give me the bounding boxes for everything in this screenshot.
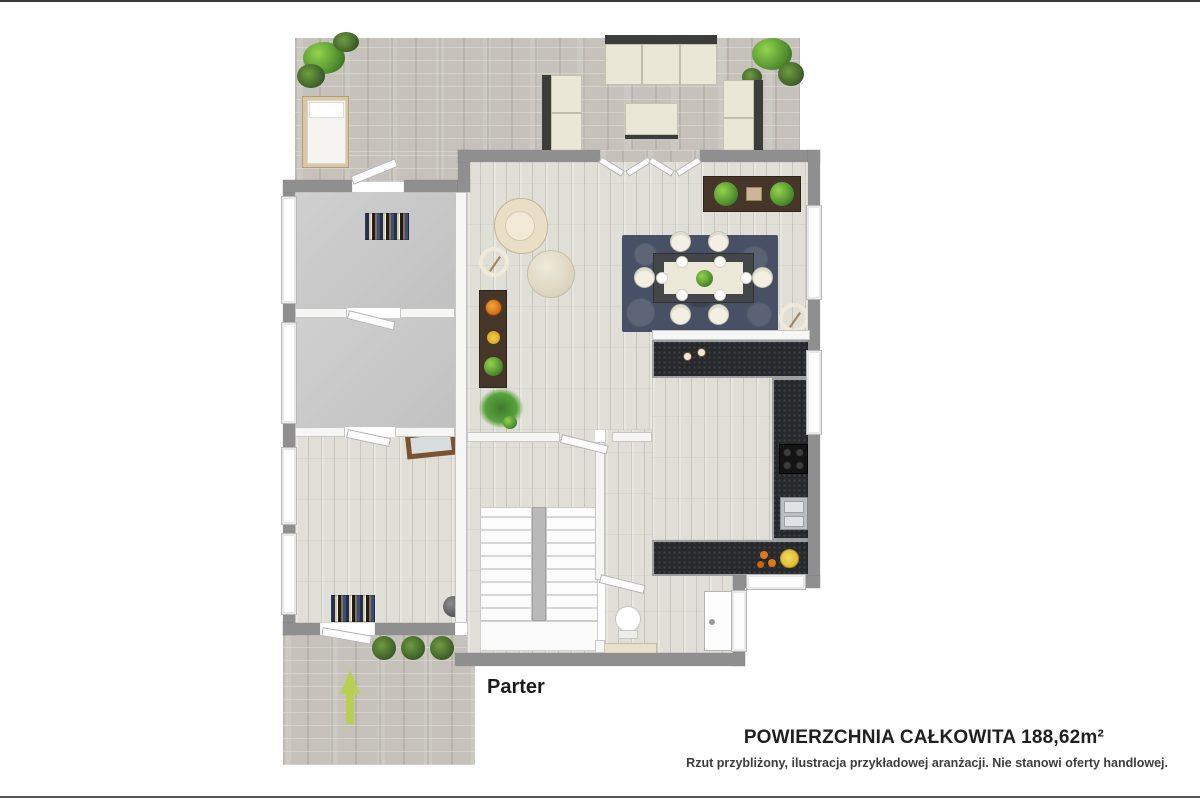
exterior-wall-bottom <box>455 653 745 666</box>
stair-divider <box>532 507 546 621</box>
outdoor-armchair-left <box>542 75 582 151</box>
lounge-armchair <box>494 198 548 254</box>
striped-doormat <box>331 595 375 622</box>
kitchen-inner-floor <box>652 378 772 540</box>
terrace-plant-icon <box>778 62 804 86</box>
stair-flight-left <box>480 507 532 621</box>
room-a-floor <box>295 192 455 308</box>
cooktop <box>779 444 808 474</box>
garden-room-floor <box>295 437 455 623</box>
dining-chair <box>670 231 691 252</box>
sideboard <box>703 176 801 212</box>
exterior-wall-garden-room-bottom-b <box>375 623 455 635</box>
kitchen-access-floor <box>605 430 652 576</box>
dining-table <box>653 253 754 303</box>
garden-bush <box>430 636 454 660</box>
sideboard-plant-icon <box>714 182 738 206</box>
kitchen-sink <box>780 497 808 530</box>
console-table <box>479 290 507 388</box>
coffee-cup <box>697 348 706 357</box>
outdoor-armchair-right <box>723 80 763 156</box>
interior-wall-living-hall-1 <box>467 432 560 442</box>
kitchen-counter-top <box>652 340 810 378</box>
entrance-arrow-icon <box>336 670 364 728</box>
sideboard-plant-icon <box>770 182 794 206</box>
floor-label: Parter <box>487 676 545 699</box>
sideboard-decor <box>746 187 762 201</box>
fruit <box>757 561 764 568</box>
console-plant-icon <box>484 357 503 376</box>
dining-chair <box>670 304 691 325</box>
floor-lamp-left <box>479 247 509 277</box>
interior-wall-hall-wc-2 <box>595 640 605 653</box>
table-centerpiece-plant-icon <box>696 270 713 287</box>
terrace-plant-icon <box>297 64 325 88</box>
interior-wall-ab-2 <box>400 308 455 318</box>
coffee-cup <box>683 352 692 361</box>
interior-wall-bc-2 <box>395 427 455 437</box>
stair-landing <box>480 621 598 651</box>
window-room-a <box>281 196 297 304</box>
dining-chair <box>708 231 729 252</box>
window-kitchen-bottom <box>746 574 806 590</box>
dining-chair <box>634 267 655 288</box>
terrace-plant-icon <box>333 32 359 52</box>
interior-wall-left-rooms <box>455 192 467 623</box>
window-living-right <box>806 205 822 300</box>
exterior-wall-top-living-right <box>700 150 820 162</box>
sun-lounger <box>302 96 349 168</box>
outdoor-coffee-table <box>625 103 678 139</box>
striped-rug-room-a <box>365 213 409 240</box>
stair-flight-right <box>546 507 598 621</box>
interior-wall-hall-wc <box>595 442 605 580</box>
pouf <box>527 250 575 298</box>
fruit-plate <box>780 549 799 568</box>
palm-plant <box>472 382 530 434</box>
dining-chair <box>752 267 773 288</box>
front-door-frame <box>731 590 747 652</box>
interior-wall-kitchen-dining <box>652 330 810 340</box>
floorplan-canvas: Parter POWIERZCHNIA CAŁKOWITA 188,62m² R… <box>0 0 1200 801</box>
front-door-leaf <box>704 591 732 651</box>
room-b-floor <box>295 318 455 427</box>
interior-wall-bc-1 <box>295 427 345 437</box>
area-title: POWIERZCHNIA CAŁKOWITA 188,62m² <box>744 727 1104 749</box>
exterior-wall-garden-room-bottom-a <box>283 623 320 635</box>
window-garden-room-1 <box>281 447 297 525</box>
toilet <box>615 606 641 640</box>
outdoor-sofa <box>605 35 717 85</box>
window-room-b <box>281 322 297 424</box>
bottom-edge-line <box>0 796 1200 798</box>
disclaimer-text: Rzut przybliżony, ilustracja przykładowe… <box>686 756 1168 770</box>
interior-wall-living-hall-2 <box>612 432 652 442</box>
top-edge-line <box>0 0 1200 2</box>
window-garden-room-2 <box>281 533 297 615</box>
flower-decor <box>487 331 500 344</box>
garden-bush <box>401 636 425 660</box>
door-handle-icon <box>709 619 715 625</box>
dining-chair <box>708 304 729 325</box>
fruit-bowl <box>485 299 502 316</box>
interior-wall-ab-1 <box>295 308 347 318</box>
floor-lamp-right <box>779 303 809 333</box>
fruit <box>768 559 776 567</box>
fruit <box>760 551 768 559</box>
exterior-wall-top-left <box>283 180 352 192</box>
window-kitchen-right <box>806 350 822 435</box>
exterior-wall-top-living-left <box>458 150 600 162</box>
garden-bush <box>372 636 396 660</box>
small-plant-icon <box>503 416 517 429</box>
